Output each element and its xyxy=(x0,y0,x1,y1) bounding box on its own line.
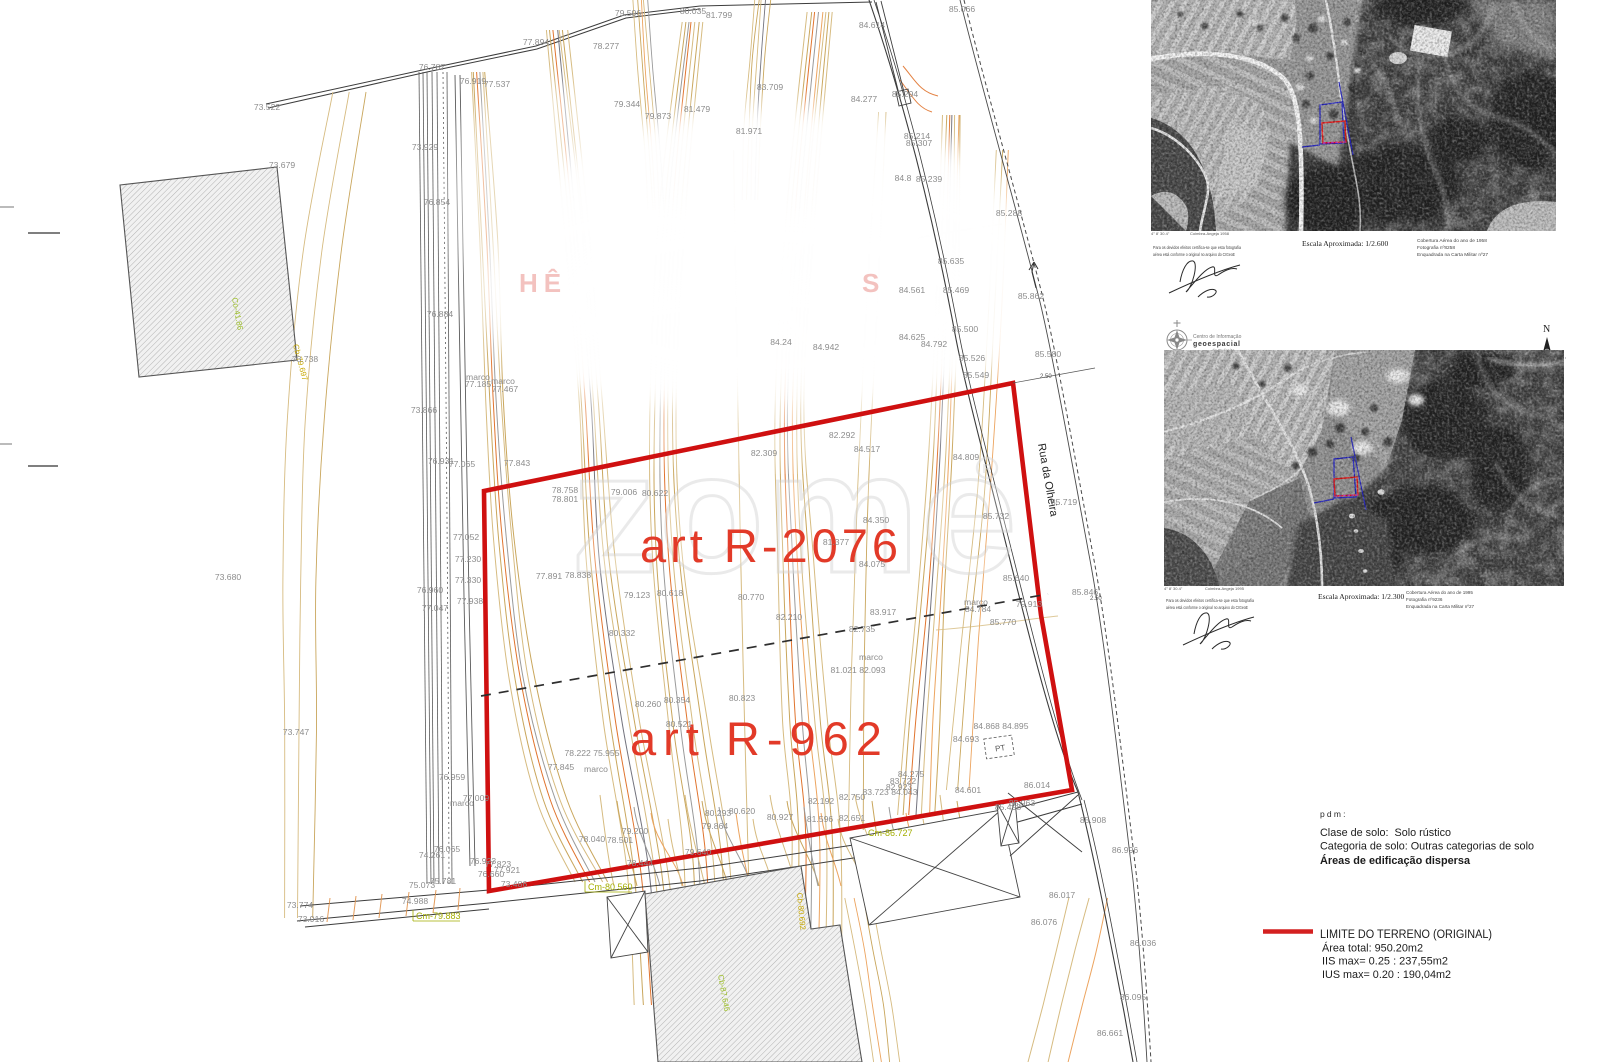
svg-text:zome: zome xyxy=(571,417,1019,609)
svg-text:82.210: 82.210 xyxy=(776,612,803,622)
svg-text:77.047: 77.047 xyxy=(422,603,449,613)
svg-text:80.770: 80.770 xyxy=(738,592,765,602)
svg-text:80.927: 80.927 xyxy=(767,812,794,822)
svg-text:85.862: 85.862 xyxy=(1018,291,1045,301)
svg-text:78.838: 78.838 xyxy=(565,570,592,580)
svg-text:86.095: 86.095 xyxy=(1120,992,1147,1002)
svg-text:Cm-80.560: Cm-80.560 xyxy=(588,882,633,892)
svg-text:85.732: 85.732 xyxy=(983,511,1010,521)
svg-text:85.640: 85.640 xyxy=(1003,573,1030,583)
svg-text:78.501: 78.501 xyxy=(607,835,634,845)
svg-text:Para os devidos efeitos certif: Para os devidos efeitos certifica-se que… xyxy=(1166,598,1254,603)
svg-text:84.561: 84.561 xyxy=(899,285,926,295)
svg-text:82.192: 82.192 xyxy=(808,796,835,806)
svg-text:84.8: 84.8 xyxy=(895,173,912,183)
svg-text:84.784: 84.784 xyxy=(965,604,992,614)
svg-text:geoespacial: geoespacial xyxy=(1193,341,1240,348)
svg-text:R: R xyxy=(982,461,992,476)
svg-text:80.332: 80.332 xyxy=(609,628,636,638)
svg-text:85.580: 85.580 xyxy=(1035,349,1062,359)
svg-text:85.526: 85.526 xyxy=(959,353,986,363)
svg-text:77.330: 77.330 xyxy=(455,575,482,585)
svg-text:84.075: 84.075 xyxy=(859,559,886,569)
svg-text:80.823: 80.823 xyxy=(729,693,756,703)
svg-text:85.549: 85.549 xyxy=(963,370,990,380)
svg-text:Fotografia nº9236: Fotografia nº9236 xyxy=(1406,597,1443,602)
svg-text:Enquadrada na Carta Militar nº: Enquadrada na Carta Militar nº27 xyxy=(1406,604,1475,609)
svg-text:74.988: 74.988 xyxy=(402,896,429,906)
svg-text:86.036: 86.036 xyxy=(1130,938,1157,948)
svg-text:Escala Aproximada: 1/2.300: Escala Aproximada: 1/2.300 xyxy=(1318,592,1404,601)
svg-text:73.916: 73.916 xyxy=(298,914,325,924)
svg-text:84.809: 84.809 xyxy=(953,452,980,462)
svg-text:77.894: 77.894 xyxy=(523,37,550,47)
svg-text:85.469: 85.469 xyxy=(943,285,970,295)
svg-text:84.942: 84.942 xyxy=(813,342,840,352)
svg-text:Escala Aproximada: 1/2.600: Escala Aproximada: 1/2.600 xyxy=(1302,239,1388,248)
svg-text:Cm-79.883: Cm-79.883 xyxy=(416,911,461,921)
svg-text:84.614: 84.614 xyxy=(859,20,886,30)
svg-text:IUS max= 0.20 : 190,04m2: IUS max= 0.20 : 190,04m2 xyxy=(1322,969,1451,981)
svg-text:75.781: 75.781 xyxy=(430,876,457,886)
svg-text:84.601: 84.601 xyxy=(955,785,982,795)
svg-text:Centro de Informação: Centro de Informação xyxy=(1193,334,1242,340)
svg-text:Cobertura Aérea do ano de 1995: Cobertura Aérea do ano de 1995 xyxy=(1406,590,1473,595)
svg-text:marco: marco xyxy=(859,652,883,662)
svg-text:85.307: 85.307 xyxy=(906,138,933,148)
svg-text:85.294: 85.294 xyxy=(892,89,919,99)
svg-text:77.843: 77.843 xyxy=(504,458,531,468)
svg-text:77.065: 77.065 xyxy=(449,459,476,469)
svg-text:85.719: 85.719 xyxy=(1051,497,1078,507)
svg-text:79.864: 79.864 xyxy=(702,821,729,831)
svg-text:80.293: 80.293 xyxy=(705,808,732,818)
svg-text:79.640: 79.640 xyxy=(685,847,712,857)
svg-text:76.065: 76.065 xyxy=(434,844,461,854)
svg-text:78.222 75.955: 78.222 75.955 xyxy=(565,748,620,758)
svg-text:76.884: 76.884 xyxy=(427,309,454,319)
svg-text:Cm-86.727: Cm-86.727 xyxy=(868,828,913,838)
svg-text:82.292: 82.292 xyxy=(829,430,856,440)
svg-text:Áreas de edificação dispersa: Áreas de edificação dispersa xyxy=(1320,854,1471,867)
svg-text:82.309: 82.309 xyxy=(751,448,778,458)
svg-text:N: N xyxy=(1543,324,1550,335)
svg-text:Coimbra-Angeja 1958: Coimbra-Angeja 1958 xyxy=(1190,231,1230,236)
svg-text:pdm:: pdm: xyxy=(1320,809,1348,819)
svg-text:aérea está conforme o original: aérea está conforme o original no arquiv… xyxy=(1153,252,1235,257)
svg-text:85.239: 85.239 xyxy=(916,174,943,184)
svg-text:84.693: 84.693 xyxy=(953,734,980,744)
svg-text:77.467: 77.467 xyxy=(492,384,519,394)
svg-text:76.960: 76.960 xyxy=(417,585,444,595)
svg-text:79.344: 79.344 xyxy=(614,99,641,109)
svg-text:73.486: 73.486 xyxy=(501,879,528,889)
svg-text:HÊ: HÊ xyxy=(519,268,567,298)
svg-text:81.479: 81.479 xyxy=(684,104,711,114)
svg-text:IIS max= 0.25 : 237,55m2: IIS max= 0.25 : 237,55m2 xyxy=(1322,956,1448,968)
svg-text:86.996: 86.996 xyxy=(1112,845,1139,855)
svg-text:84.517: 84.517 xyxy=(854,444,881,454)
svg-text:73.680: 73.680 xyxy=(215,572,242,582)
svg-text:85.500: 85.500 xyxy=(952,324,979,334)
svg-text:84.24: 84.24 xyxy=(770,337,792,347)
svg-text:84.792: 84.792 xyxy=(921,339,948,349)
svg-text:82.651: 82.651 xyxy=(839,813,866,823)
svg-text:78.444: 78.444 xyxy=(627,858,654,868)
svg-text:77.230: 77.230 xyxy=(455,554,482,564)
svg-text:77.891: 77.891 xyxy=(536,571,563,581)
svg-text:aérea está conforme o original: aérea está conforme o original no arquiv… xyxy=(1166,605,1248,610)
svg-text:85.066: 85.066 xyxy=(949,4,976,14)
svg-text:Fotografia nº8258: Fotografia nº8258 xyxy=(1417,245,1455,251)
svg-text:85.846: 85.846 xyxy=(1072,587,1099,597)
svg-text:79.596: 79.596 xyxy=(615,8,642,18)
svg-text:73.738: 73.738 xyxy=(292,354,319,364)
svg-text:84.350: 84.350 xyxy=(863,515,890,525)
svg-text:76.787: 76.787 xyxy=(419,62,446,72)
svg-text:81.596: 81.596 xyxy=(807,814,834,824)
svg-text:76.959: 76.959 xyxy=(439,772,466,782)
svg-text:84.277: 84.277 xyxy=(851,94,878,104)
svg-text:77.537: 77.537 xyxy=(484,79,511,89)
svg-text:85.635: 85.635 xyxy=(938,256,965,266)
svg-text:marco: marco xyxy=(450,798,474,808)
svg-text:Coimbra-Angeja 1995: Coimbra-Angeja 1995 xyxy=(1205,586,1245,591)
svg-text:76.919: 76.919 xyxy=(460,76,487,86)
svg-text:79.913: 79.913 xyxy=(1016,599,1043,609)
svg-text:81.799: 81.799 xyxy=(706,10,733,20)
svg-text:Clase de solo: Solo rústico: Clase de solo: Solo rústico xyxy=(1320,827,1451,839)
svg-text:marco: marco xyxy=(584,764,608,774)
svg-text:84.868 84.895: 84.868 84.895 xyxy=(974,721,1029,731)
svg-text:80.618: 80.618 xyxy=(657,588,684,598)
svg-text:77.823: 77.823 xyxy=(485,859,512,869)
svg-text:73.774: 73.774 xyxy=(287,900,314,910)
svg-text:82.735: 82.735 xyxy=(849,624,876,634)
svg-text:82.750: 82.750 xyxy=(839,792,866,802)
svg-text:2.50: 2.50 xyxy=(1040,374,1052,380)
svg-text:77.185: 77.185 xyxy=(465,379,492,389)
svg-text:PT: PT xyxy=(995,743,1006,753)
svg-text:81.021 82.093: 81.021 82.093 xyxy=(831,665,886,675)
svg-text:86.017: 86.017 xyxy=(1049,890,1076,900)
svg-text:85.498: 85.498 xyxy=(995,802,1022,812)
svg-text:LIMITE DO TERRENO (ORIGINAL): LIMITE DO TERRENO (ORIGINAL) xyxy=(1320,929,1492,941)
svg-text:4° 8' 30.4": 4° 8' 30.4" xyxy=(1151,231,1170,236)
svg-text:79.873: 79.873 xyxy=(645,111,672,121)
svg-text:80.622: 80.622 xyxy=(642,488,669,498)
svg-text:Categoria de solo: Outras cate: Categoria de solo: Outras categorias de … xyxy=(1320,841,1534,853)
svg-text:80.260: 80.260 xyxy=(635,699,662,709)
svg-text:S: S xyxy=(862,268,879,298)
svg-text:85.770: 85.770 xyxy=(990,617,1017,627)
svg-text:73.866: 73.866 xyxy=(411,405,438,415)
svg-text:77.052: 77.052 xyxy=(453,532,480,542)
svg-text:86.661: 86.661 xyxy=(1097,1028,1124,1038)
svg-text:85.908: 85.908 xyxy=(1080,815,1107,825)
svg-text:77.938: 77.938 xyxy=(457,596,484,606)
svg-text:83.722: 83.722 xyxy=(890,776,917,786)
svg-text:76.854: 76.854 xyxy=(424,197,451,207)
svg-text:83.917: 83.917 xyxy=(870,607,897,617)
svg-text:78.801: 78.801 xyxy=(552,494,579,504)
svg-text:86.076: 86.076 xyxy=(1031,917,1058,927)
svg-text:73.747: 73.747 xyxy=(283,727,310,737)
svg-text:Enquadrada na Carta Militar nº: Enquadrada na Carta Militar nº27 xyxy=(1417,252,1488,258)
svg-text:73.929: 73.929 xyxy=(412,142,439,152)
svg-text:77.845: 77.845 xyxy=(548,762,575,772)
svg-text:80.354: 80.354 xyxy=(664,695,691,705)
svg-text:81.971: 81.971 xyxy=(736,126,763,136)
svg-text:4° 8' 30.4": 4° 8' 30.4" xyxy=(1164,586,1183,591)
svg-text:80.521: 80.521 xyxy=(666,719,693,729)
svg-text:73.679: 73.679 xyxy=(269,160,296,170)
svg-text:Cobertura Aérea do ano de 1958: Cobertura Aérea do ano de 1958 xyxy=(1417,238,1487,244)
svg-text:85.288: 85.288 xyxy=(996,208,1023,218)
svg-text:78.040: 78.040 xyxy=(579,834,606,844)
svg-text:86.014: 86.014 xyxy=(1024,780,1051,790)
svg-text:79.006: 79.006 xyxy=(611,487,638,497)
svg-text:73.522: 73.522 xyxy=(254,102,281,112)
svg-text:81.377: 81.377 xyxy=(823,537,850,547)
svg-text:78.277: 78.277 xyxy=(593,41,620,51)
svg-text:80.035: 80.035 xyxy=(680,6,707,16)
svg-text:Área total: 950.20m2: Área total: 950.20m2 xyxy=(1322,942,1423,955)
svg-text:80.620: 80.620 xyxy=(729,806,756,816)
svg-text:83.709: 83.709 xyxy=(757,82,784,92)
svg-text:79.123: 79.123 xyxy=(624,590,651,600)
svg-text:Para os devidos efeitos certif: Para os devidos efeitos certifica-se que… xyxy=(1153,245,1241,250)
